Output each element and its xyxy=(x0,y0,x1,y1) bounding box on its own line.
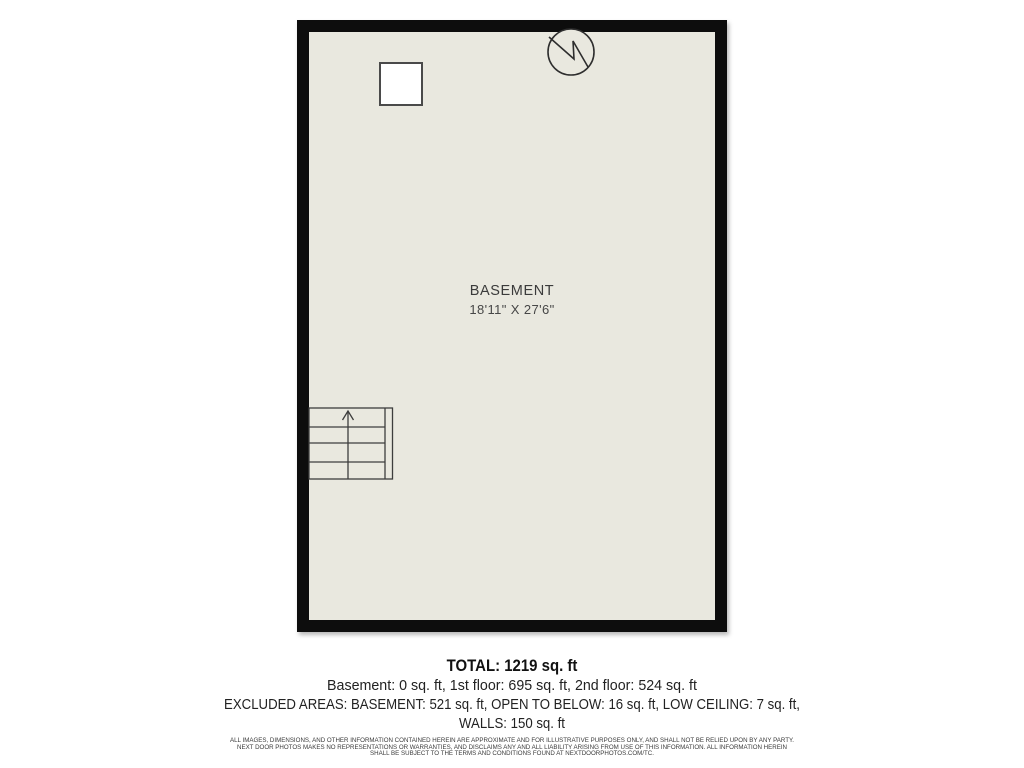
water-heater-icon xyxy=(548,29,594,75)
excluded-areas-line1: EXCLUDED AREAS: BASEMENT: 521 sq. ft, OP… xyxy=(61,695,962,714)
floorplan-drawing xyxy=(297,20,727,632)
total-area: TOTAL: 1219 sq. ft xyxy=(61,656,962,676)
disclaimer: ALL IMAGES, DIMENSIONS, AND OTHER INFORM… xyxy=(26,738,999,758)
excluded-areas-line2: WALLS: 150 sq. ft xyxy=(61,714,962,733)
room-label: BASEMENT xyxy=(297,282,727,301)
room-outline xyxy=(303,26,721,626)
disclaimer-line3: SHALL BE SUBJECT TO THE TERMS AND CONDIT… xyxy=(26,751,999,758)
window-square-icon xyxy=(380,63,422,105)
area-summary: TOTAL: 1219 sq. ft Basement: 0 sq. ft, 1… xyxy=(0,656,1024,758)
room-dimensions: 18'11" X 27'6" xyxy=(297,301,727,319)
room-label-block: BASEMENT 18'11" X 27'6" xyxy=(297,282,727,319)
basement-floorplan: BASEMENT 18'11" X 27'6" xyxy=(297,20,727,632)
floor-areas: Basement: 0 sq. ft, 1st floor: 695 sq. f… xyxy=(26,676,999,695)
